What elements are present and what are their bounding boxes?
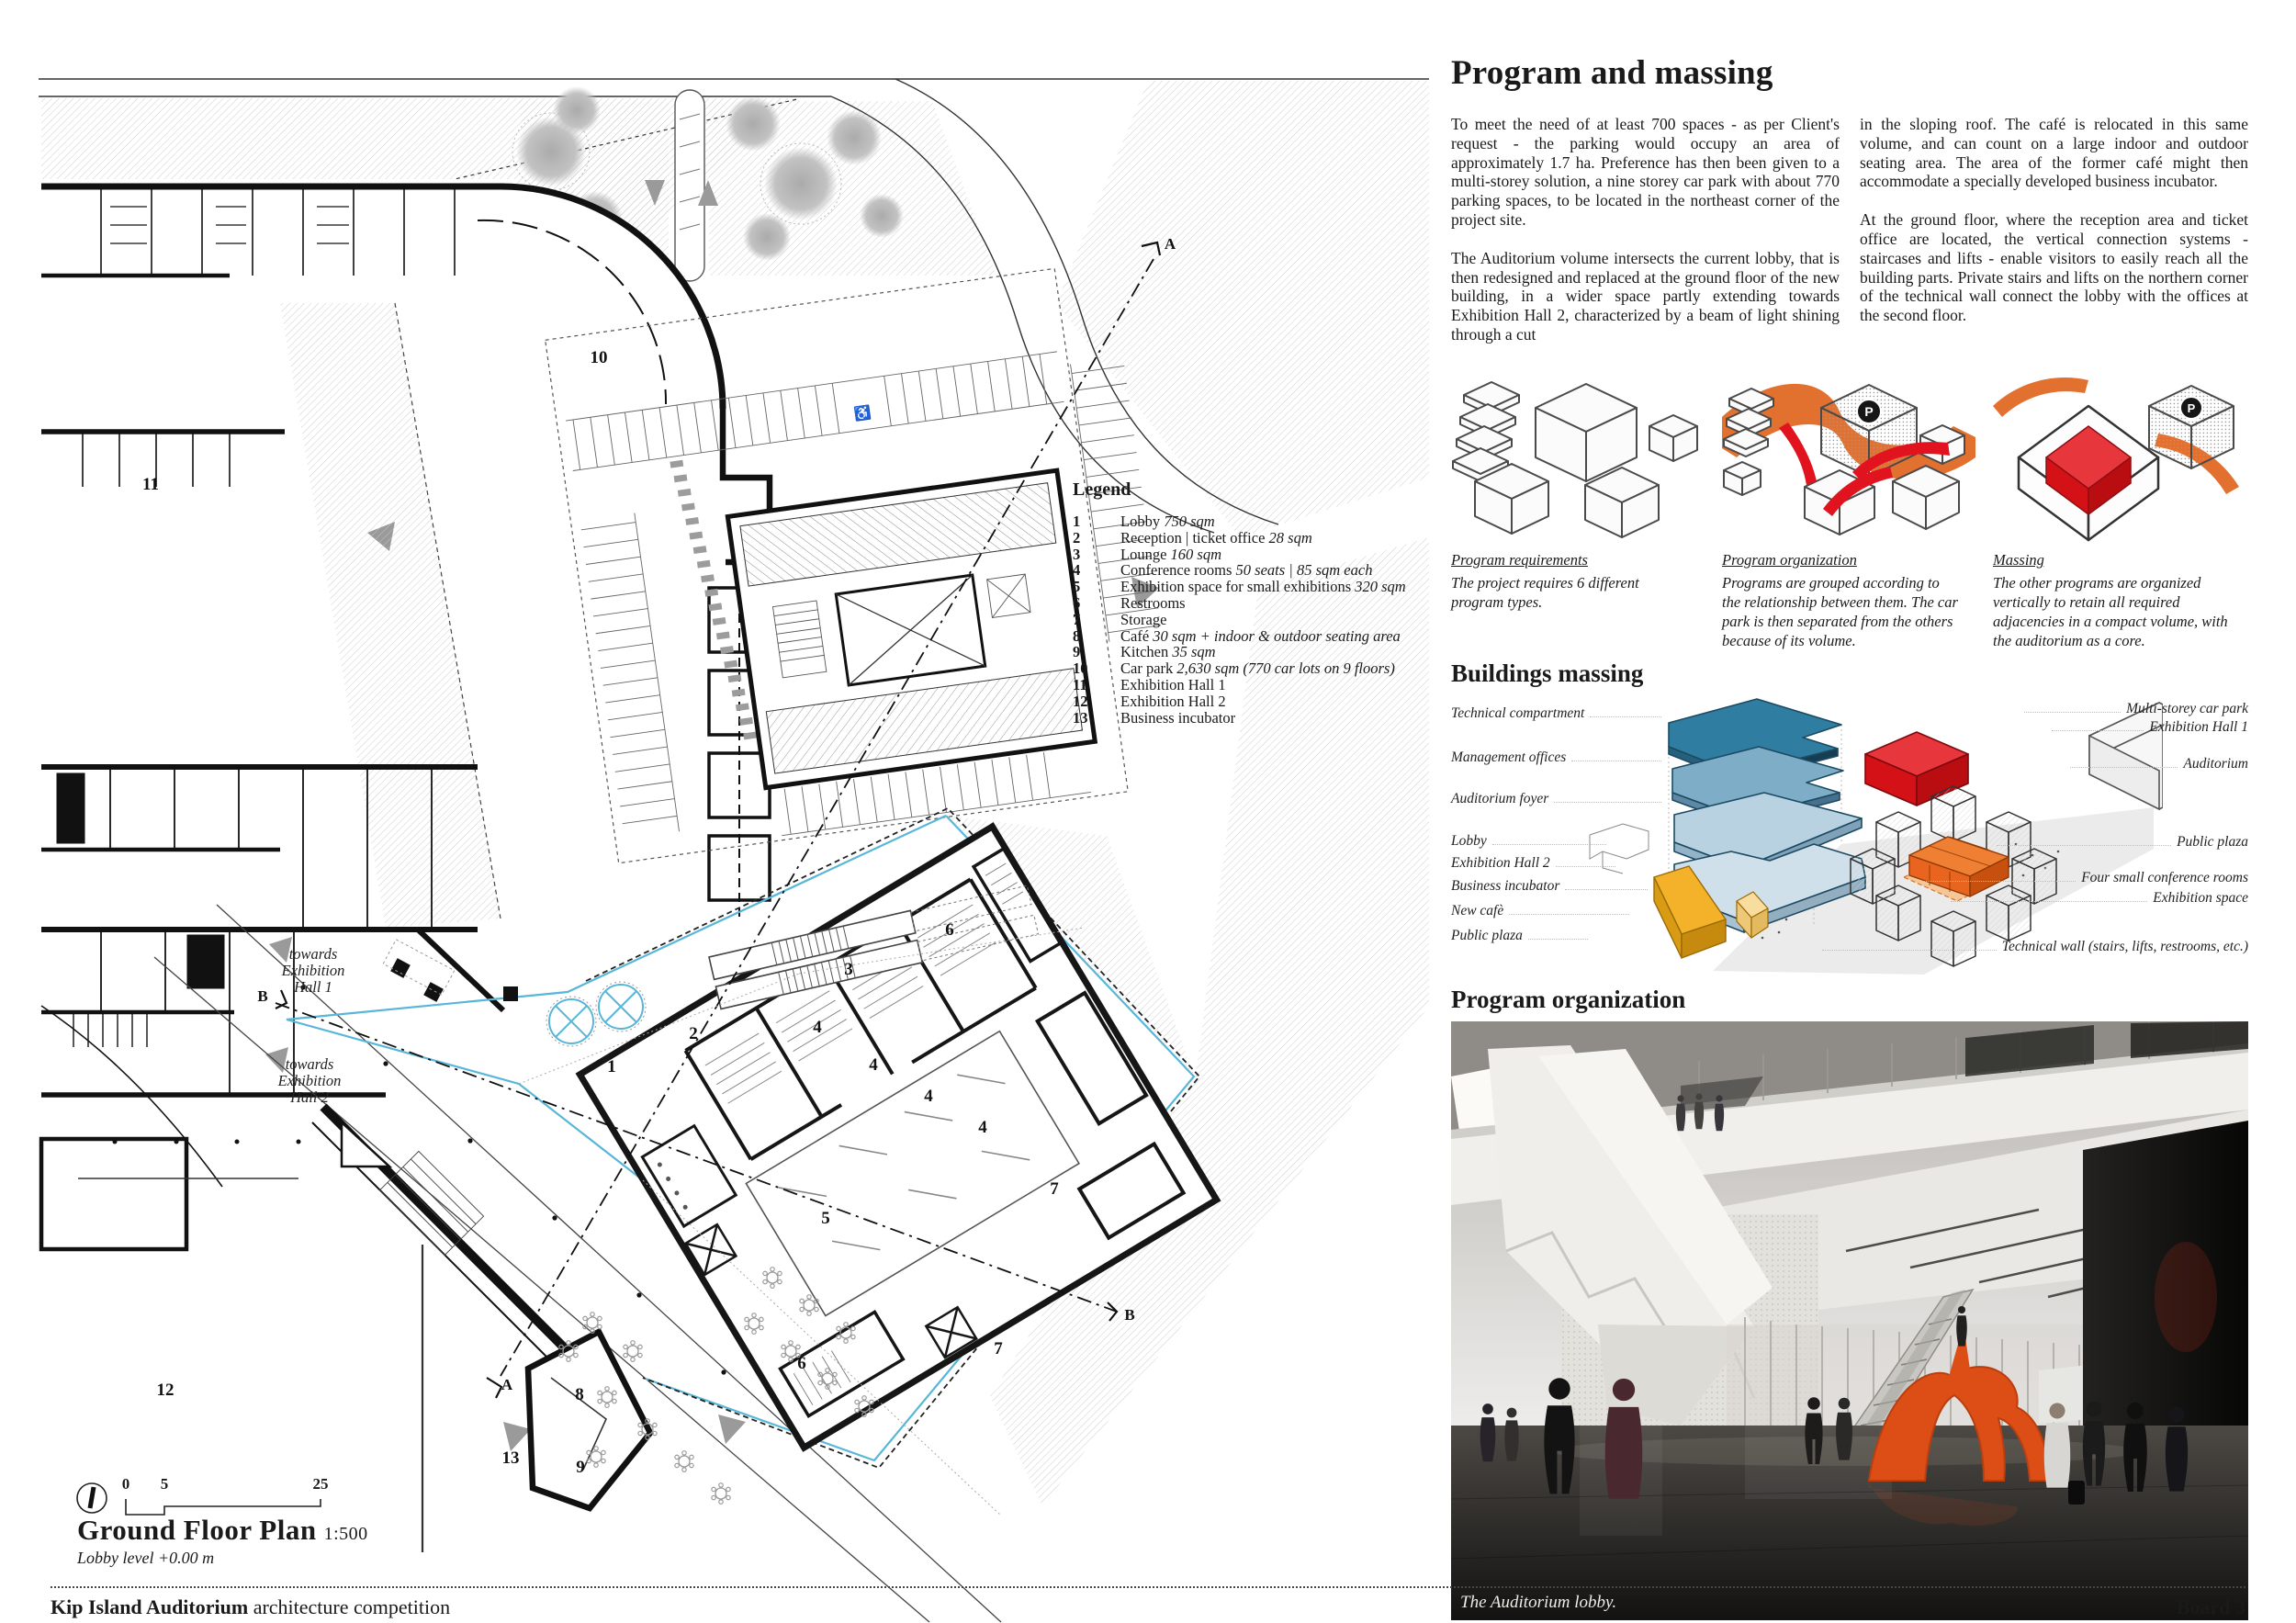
plan-title-block: Ground Floor Plan1:500 Lobby level +0.00… — [77, 1514, 368, 1568]
plan-room-number: 10 — [591, 348, 608, 368]
legend-item: 5Exhibition space for small exhibitions … — [1073, 579, 1440, 595]
legend-item-number: 12 — [1073, 693, 1120, 710]
section-marker-label: B — [1124, 1306, 1134, 1324]
plan-room-number: 9 — [576, 1458, 585, 1478]
legend-item: 11Exhibition Hall 1 — [1073, 677, 1440, 693]
intro-text: To meet the need of at least 700 spaces … — [1451, 115, 2248, 364]
footer-left: Kip Island Auditorium architecture compe… — [51, 1595, 450, 1619]
page-title: Program and massing — [1451, 53, 2248, 93]
massing-label-text: Auditorium foyer — [1451, 791, 1548, 807]
legend-item-number: 5 — [1073, 579, 1120, 595]
label-leader-line — [2052, 730, 2144, 731]
legend-item: 9Kitchen 35 sqm — [1073, 644, 1440, 660]
legend-item: 4Conference rooms 50 seats | 85 sqm each — [1073, 562, 1440, 579]
diagram-caption: Programs are grouped according to the re… — [1722, 573, 1959, 650]
plan-room-number: 4 — [978, 1118, 987, 1138]
legend-item: 12Exhibition Hall 2 — [1073, 693, 1440, 710]
legend-item-number: 7 — [1073, 612, 1120, 628]
legend-item-number: 9 — [1073, 644, 1120, 660]
legend-item: 6Restrooms — [1073, 595, 1440, 612]
massing-label-text: Public plaza — [2177, 834, 2248, 851]
plan-subtitle: Lobby level +0.00 m — [77, 1549, 368, 1568]
legend-item-number: 1 — [1073, 513, 1120, 530]
label-leader-line — [1997, 845, 2171, 846]
massing-label-left: New cafè — [1451, 903, 1635, 919]
diagram-caption: The other programs are organized vertica… — [1993, 573, 2230, 650]
massing-label-left: Auditorium foyer — [1451, 791, 1667, 807]
legend-item-text: Kitchen 35 sqm — [1120, 644, 1216, 660]
massing-label-left: Lobby — [1451, 833, 1612, 850]
site-plan-drawing: ♿ — [0, 0, 1433, 1623]
label-leader-line — [1571, 761, 1661, 761]
massing-label-left: Management offices — [1451, 750, 1667, 766]
diagram-title: Massing — [1993, 551, 2246, 569]
massing-label-right: Technical wall (stairs, lifts, restrooms… — [1817, 939, 2248, 955]
ground-floor-plan: ♿ — [0, 0, 1433, 1623]
concept-diagrams: Program requirements The project require… — [1451, 369, 2248, 650]
diagram-title: Program organization — [1722, 551, 1975, 569]
massing-label-text: Public plaza — [1451, 928, 1523, 944]
massing-label-text: Technical wall (stairs, lifts, restrooms… — [2002, 939, 2248, 955]
legend-item: 2Reception | ticket office 28 sqm — [1073, 530, 1440, 547]
massing-label-right: Public plaza — [1991, 834, 2248, 851]
cafe-building — [528, 1332, 650, 1508]
section-marker-label: A — [501, 1376, 512, 1394]
massing-label-text: Technical compartment — [1451, 705, 1584, 722]
label-leader-line — [1565, 889, 1648, 890]
massing-label-text: Lobby — [1451, 833, 1487, 850]
lobby-render-photo: The Auditorium lobby. — [1451, 1021, 2248, 1620]
legend-item-text: Conference rooms 50 seats | 85 sqm each — [1120, 562, 1372, 579]
legend-item-text: Café 30 sqm + indoor & outdoor seating a… — [1120, 628, 1401, 645]
massing-label-text: Four small conference rooms — [2081, 870, 2248, 886]
plan-scale: 1:500 — [324, 1524, 368, 1544]
legend-item-number: 4 — [1073, 562, 1120, 579]
plan-room-number: 4 — [869, 1055, 878, 1076]
skylight-symbols — [549, 985, 643, 1043]
legend-item: 3Lounge 160 sqm — [1073, 547, 1440, 563]
plan-room-number: 3 — [844, 960, 853, 980]
svg-text:P: P — [2188, 401, 2196, 415]
legend-item-number: 10 — [1073, 660, 1120, 677]
massing-label-text: New cafè — [1451, 903, 1503, 919]
plan-room-number: 12 — [157, 1381, 174, 1401]
legend-item-text: Car park 2,630 sqm (770 car lots on 9 fl… — [1120, 660, 1395, 677]
legend-item-number: 6 — [1073, 595, 1120, 612]
massing-label-left: Exhibition Hall 2 — [1451, 855, 1621, 872]
massing-label-text: Management offices — [1451, 750, 1566, 766]
massing-label-left: Public plaza — [1451, 928, 1593, 944]
scale-bar-number: 0 — [122, 1475, 130, 1493]
legend-item-number: 3 — [1073, 547, 1120, 563]
paragraph: To meet the need of at least 700 spaces … — [1451, 115, 1840, 230]
massing-illustration: P — [1993, 369, 2246, 544]
plan-room-number: 6 — [945, 920, 954, 941]
label-leader-line — [1951, 901, 2147, 902]
legend-title: Legend — [1073, 479, 1440, 501]
legend-rows: 1Lobby 750 sqm2Reception | ticket office… — [1073, 513, 1440, 726]
massing-label-text: Exhibition space — [2153, 890, 2248, 907]
label-leader-line — [1923, 881, 2076, 882]
section-marker-label: A — [1165, 235, 1176, 254]
label-leader-line — [1492, 844, 1606, 845]
competition-board: ♿ — [0, 0, 2296, 1623]
diagram-program-requirements: Program requirements The project require… — [1451, 369, 1705, 650]
program-organization-illustration: P — [1722, 369, 1975, 544]
plan-annotation: towardsExhibitionHall 2 — [278, 1056, 342, 1106]
legend-item-text: Exhibition Hall 1 — [1120, 677, 1226, 693]
buildings-massing-diagram: Technical compartmentManagement officesA… — [1451, 697, 2248, 975]
massing-label-left: Technical compartment — [1451, 705, 1667, 722]
diagram-title: Program requirements — [1451, 551, 1705, 569]
legend-item: 8Café 30 sqm + indoor & outdoor seating … — [1073, 628, 1440, 645]
legend: Legend 1Lobby 750 sqm2Reception | ticket… — [1073, 479, 1440, 726]
massing-label-left: Business incubator — [1451, 878, 1653, 895]
legend-item: 13Business incubator — [1073, 710, 1440, 727]
plan-room-number: 8 — [575, 1385, 584, 1405]
massing-label-right: Auditorium — [2065, 756, 2248, 772]
lobby-render-illustration — [1451, 1021, 2248, 1620]
scale-bar — [126, 1499, 321, 1515]
paragraph: The Auditorium volume intersects the cur… — [1451, 249, 1840, 344]
massing-label-right: Exhibition Hall 1 — [2046, 719, 2248, 736]
plan-room-number: 5 — [821, 1209, 830, 1229]
massing-label-text: Multi-storey car park — [2126, 701, 2248, 717]
diagram-massing: P Massing The other programs are organiz… — [1993, 369, 2246, 650]
legend-item-text: Exhibition Hall 2 — [1120, 693, 1226, 710]
plan-room-number: 7 — [994, 1339, 1003, 1359]
legend-item-text: Restrooms — [1120, 595, 1186, 612]
plan-title: Ground Floor Plan — [77, 1514, 317, 1546]
legend-item: 7Storage — [1073, 612, 1440, 628]
legend-item-number: 13 — [1073, 710, 1120, 727]
project-name: Kip Island Auditorium — [51, 1595, 248, 1618]
legend-item: 1Lobby 750 sqm — [1073, 513, 1440, 530]
legend-item-text: Lounge 160 sqm — [1120, 547, 1221, 563]
label-leader-line — [1528, 939, 1588, 940]
section-marker-label: B — [257, 987, 267, 1006]
label-leader-line — [1509, 914, 1629, 915]
label-leader-line — [1822, 950, 1997, 951]
plan-room-number: 2 — [689, 1024, 698, 1044]
legend-item-text: Storage — [1120, 612, 1166, 628]
board-number: Board 3 — [2177, 1595, 2245, 1619]
scale-bar-number: 25 — [313, 1475, 329, 1493]
legend-item-text: Reception | ticket office 28 sqm — [1120, 530, 1312, 547]
massing-label-text: Exhibition Hall 1 — [2149, 719, 2248, 736]
legend-item-number: 11 — [1073, 677, 1120, 693]
legend-item-number: 8 — [1073, 628, 1120, 645]
plan-room-number: 13 — [502, 1448, 520, 1469]
footer-left-rest: architecture competition — [248, 1595, 450, 1618]
buildings-massing-title: Buildings massing — [1451, 659, 2248, 688]
paragraph: At the ground floor, where the reception… — [1860, 210, 2248, 325]
legend-item-number: 2 — [1073, 530, 1120, 547]
north-arrow — [77, 1483, 107, 1513]
plan-room-number: 11 — [142, 475, 159, 495]
right-column: Program and massing To meet the need of … — [1451, 53, 2248, 1620]
massing-label-text: Auditorium — [2183, 756, 2248, 772]
legend-item-text: Lobby 750 sqm — [1120, 513, 1215, 530]
program-requirements-illustration — [1451, 369, 1705, 544]
diagram-caption: The project requires 6 different program… — [1451, 573, 1688, 612]
legend-item-text: Business incubator — [1120, 710, 1235, 727]
plan-room-number: 7 — [1050, 1179, 1059, 1200]
scale-bar-number: 5 — [161, 1475, 169, 1493]
footer: Kip Island Auditorium architecture compe… — [51, 1586, 2245, 1619]
label-leader-line — [1556, 866, 1615, 867]
massing-label-text: Exhibition Hall 2 — [1451, 855, 1550, 872]
program-organization-title: Program organization — [1451, 986, 2248, 1014]
label-leader-line — [1554, 802, 1661, 803]
massing-label-right: Multi-storey car park — [2019, 701, 2248, 717]
svg-text:♿: ♿ — [853, 404, 872, 423]
plan-room-number: 1 — [607, 1057, 616, 1077]
plan-annotation: towardsExhibitionHall 1 — [282, 946, 345, 996]
label-leader-line — [2024, 712, 2121, 713]
legend-item-text: Exhibition space for small exhibitions 3… — [1120, 579, 1406, 595]
svg-text:P: P — [1864, 404, 1873, 419]
massing-label-text: Business incubator — [1451, 878, 1559, 895]
label-leader-line — [2070, 767, 2178, 768]
diagram-program-organization: P Program organization Programs are grou… — [1722, 369, 1975, 650]
massing-label-right: Exhibition space — [1945, 890, 2248, 907]
plan-room-number: 4 — [924, 1087, 933, 1107]
label-leader-line — [1590, 716, 1661, 717]
plan-room-number: 6 — [797, 1354, 806, 1374]
massing-label-right: Four small conference rooms — [1918, 870, 2248, 886]
plan-room-number: 4 — [813, 1018, 822, 1038]
paragraph: in the sloping roof. The café is relocat… — [1860, 115, 2248, 191]
legend-item: 10Car park 2,630 sqm (770 car lots on 9 … — [1073, 660, 1440, 677]
